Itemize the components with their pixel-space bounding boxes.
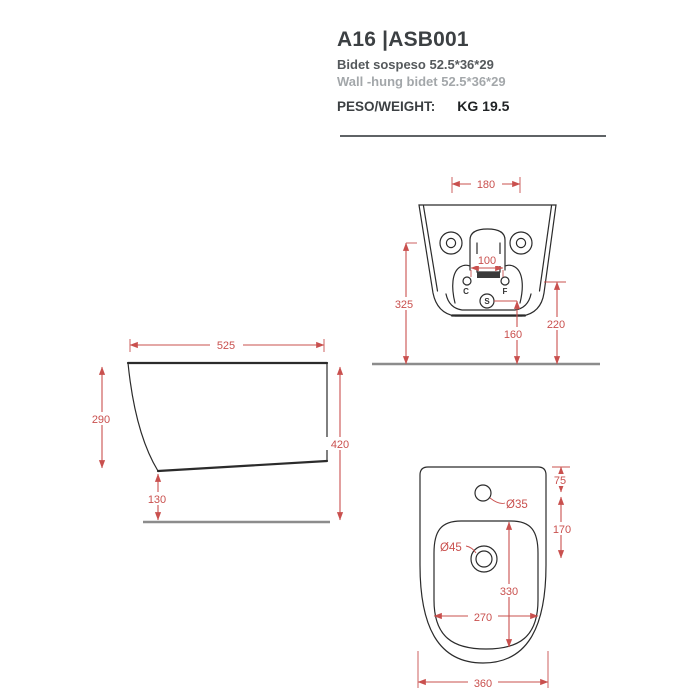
hot-water-hole — [501, 277, 509, 285]
top-body-outline — [420, 467, 546, 663]
side-front-curve — [128, 363, 158, 471]
mounting-hole-left-inner — [446, 238, 455, 247]
drain-inner — [476, 551, 492, 567]
side-view: 525 290 420 130 — [88, 338, 354, 522]
top-view: Ø35 Ø45 75 170 330 270 — [418, 467, 576, 690]
inlet-recess-shadow — [477, 272, 500, 278]
dim-front-height: 290 — [92, 414, 110, 426]
drain-label: S — [484, 297, 490, 306]
dim-overall-height: 420 — [331, 439, 349, 451]
mounting-hole-right-inner — [516, 238, 525, 247]
tap-hole-leader — [490, 498, 505, 503]
dim-height-right: 220 — [547, 319, 565, 331]
mounting-hole-right — [510, 232, 532, 254]
dim-tap-hole-dia: Ø35 — [506, 499, 528, 511]
dim-basin-width: 270 — [474, 612, 492, 624]
dim-inlet-spacing: 100 — [478, 255, 496, 267]
inlet-platform-left — [453, 265, 470, 303]
drain-outer — [471, 546, 497, 572]
dim-basin-length: 330 — [500, 586, 518, 598]
tap-hole — [475, 485, 491, 501]
dim-tap-offset: 75 — [554, 475, 566, 487]
spec-sheet-page: A16 |ASB001 Bidet sospeso 52.5*36*29 Wal… — [0, 0, 700, 700]
dim-depth: 525 — [217, 340, 235, 352]
dim-tap-to-drain: 170 — [553, 524, 571, 536]
technical-drawing: C F S 180 100 325 2 — [0, 0, 700, 700]
dim-drain-dia: Ø45 — [440, 542, 462, 554]
dim-overall-width: 360 — [474, 678, 492, 690]
dim-mount-width: 180 — [477, 179, 495, 191]
hot-label: F — [503, 287, 508, 296]
dim-bottom-clearance: 130 — [148, 494, 166, 506]
side-bottom-edge — [158, 461, 327, 471]
rear-view: C F S 180 100 325 2 — [372, 177, 600, 364]
cold-label: C — [463, 287, 469, 296]
cold-water-hole — [463, 277, 471, 285]
dim-drain-height: 160 — [504, 329, 522, 341]
mounting-hole-left — [440, 232, 462, 254]
dim-height-left: 325 — [395, 299, 413, 311]
